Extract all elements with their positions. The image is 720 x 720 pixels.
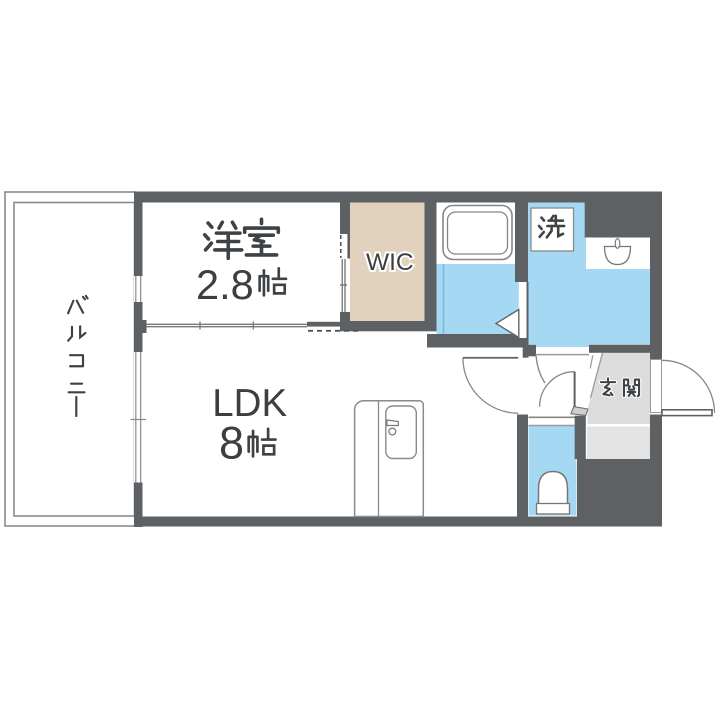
svg-text:WIC: WIC: [366, 249, 414, 276]
svg-text:2.8: 2.8: [196, 261, 254, 308]
svg-text:8: 8: [219, 417, 244, 468]
